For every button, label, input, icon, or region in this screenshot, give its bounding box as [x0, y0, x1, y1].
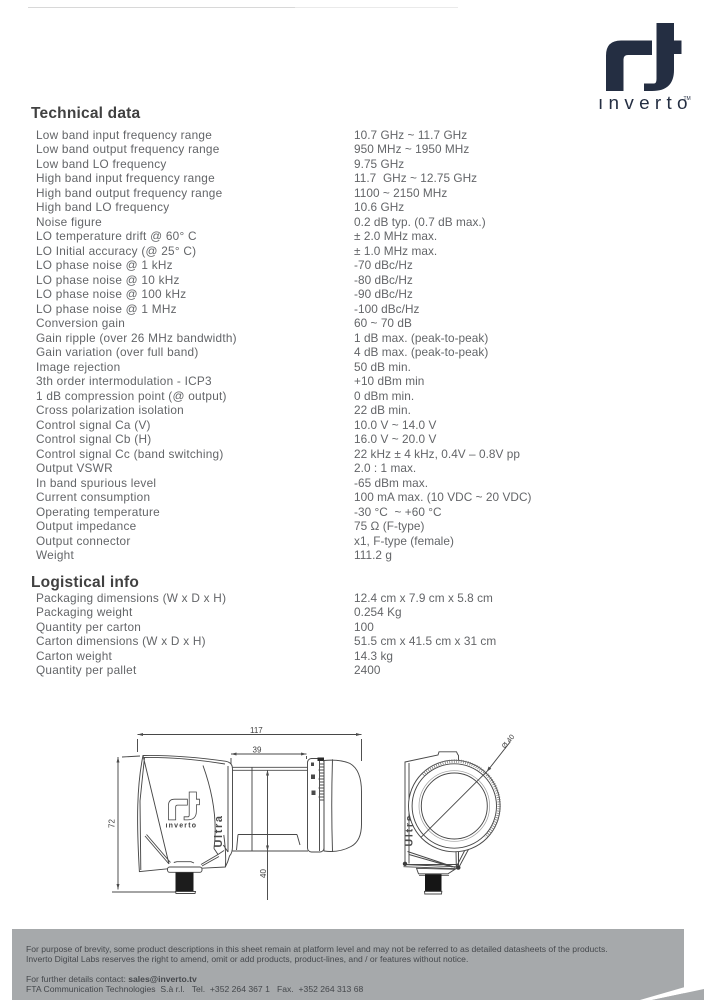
svg-text:39: 39 — [253, 746, 262, 755]
svg-text:40: 40 — [259, 869, 268, 878]
svg-text:ınverto: ınverto — [166, 823, 198, 830]
svg-text:117: 117 — [250, 726, 263, 735]
svg-text:Ultra: Ultra — [213, 814, 225, 847]
svg-text:Ø 40: Ø 40 — [500, 732, 517, 750]
svg-text:72: 72 — [108, 819, 117, 828]
